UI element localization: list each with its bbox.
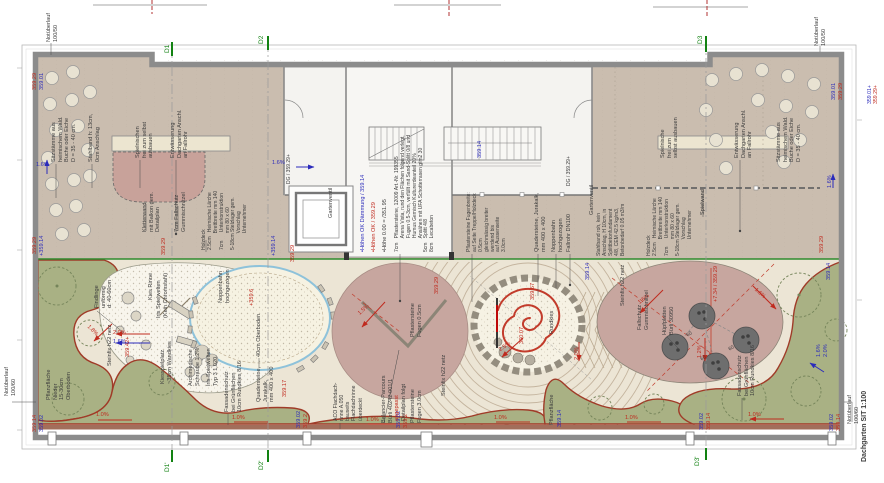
- stair-right: [444, 127, 541, 160]
- door-mark: [344, 252, 349, 260]
- axis-lines: [93, 0, 748, 18]
- shaft: [289, 186, 353, 252]
- roof-garden-plan: Notüberlauf 100/50Notüberlauf 100/50Notü…: [0, 0, 884, 483]
- climbing-wall: [113, 152, 205, 202]
- plan-drawing: [0, 0, 884, 483]
- wood-deck-right: [658, 136, 788, 149]
- gravel-strip: [38, 425, 840, 430]
- stair-left: [369, 127, 424, 160]
- door-mark: [449, 252, 454, 260]
- wood-deck-left: [112, 136, 230, 151]
